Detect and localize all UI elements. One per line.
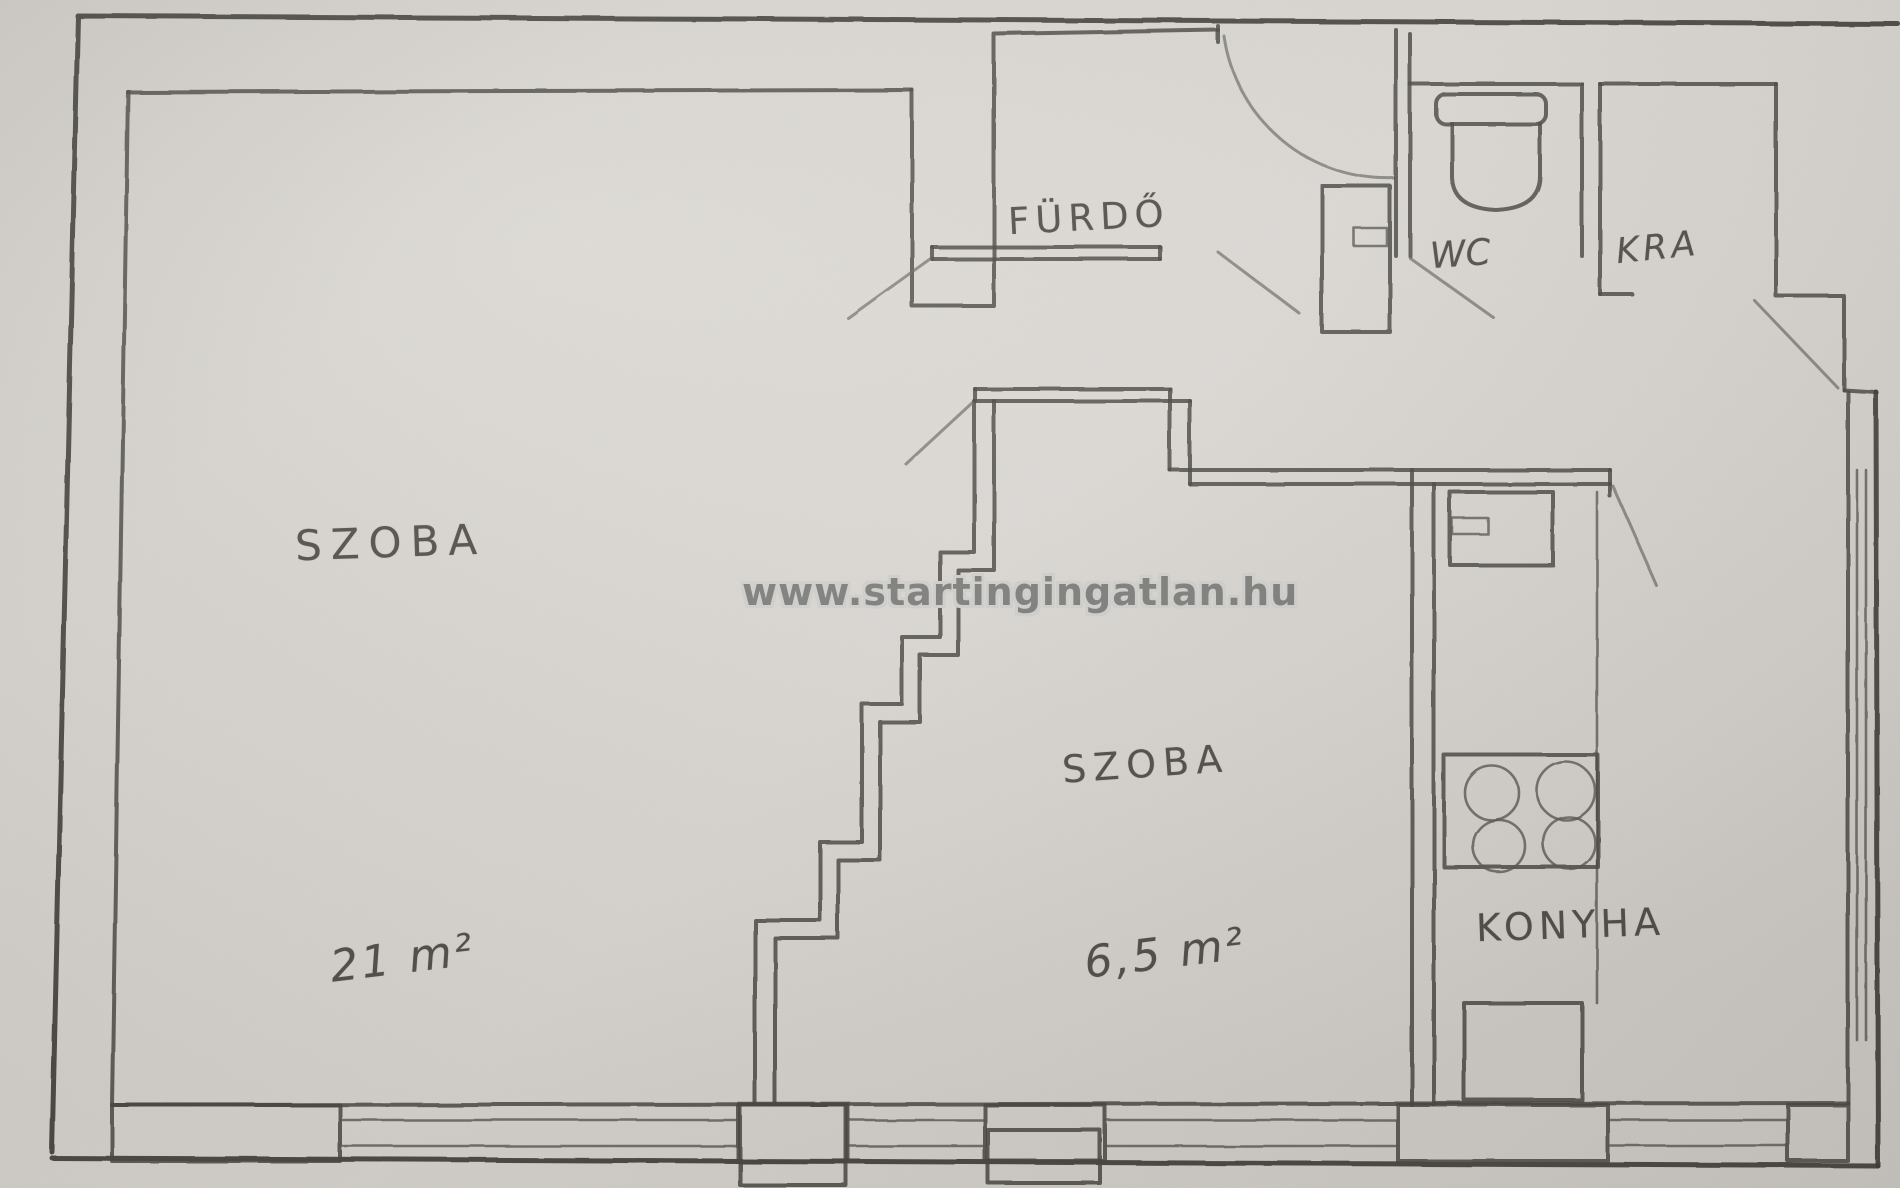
floorplan-photo: SZOBA 21 m² SZOBA 6,5 m² FÜRDŐ WC KRA KO…: [0, 0, 1900, 1188]
room-label-wc: WC: [1429, 232, 1492, 277]
room-label-furdo: FÜRDŐ: [1007, 192, 1171, 243]
room-label-szoba-large: SZOBA: [294, 515, 487, 571]
room-label-konyha: KONYHA: [1475, 900, 1665, 951]
watermark-text: www.startingingatlan.hu: [742, 570, 1298, 614]
